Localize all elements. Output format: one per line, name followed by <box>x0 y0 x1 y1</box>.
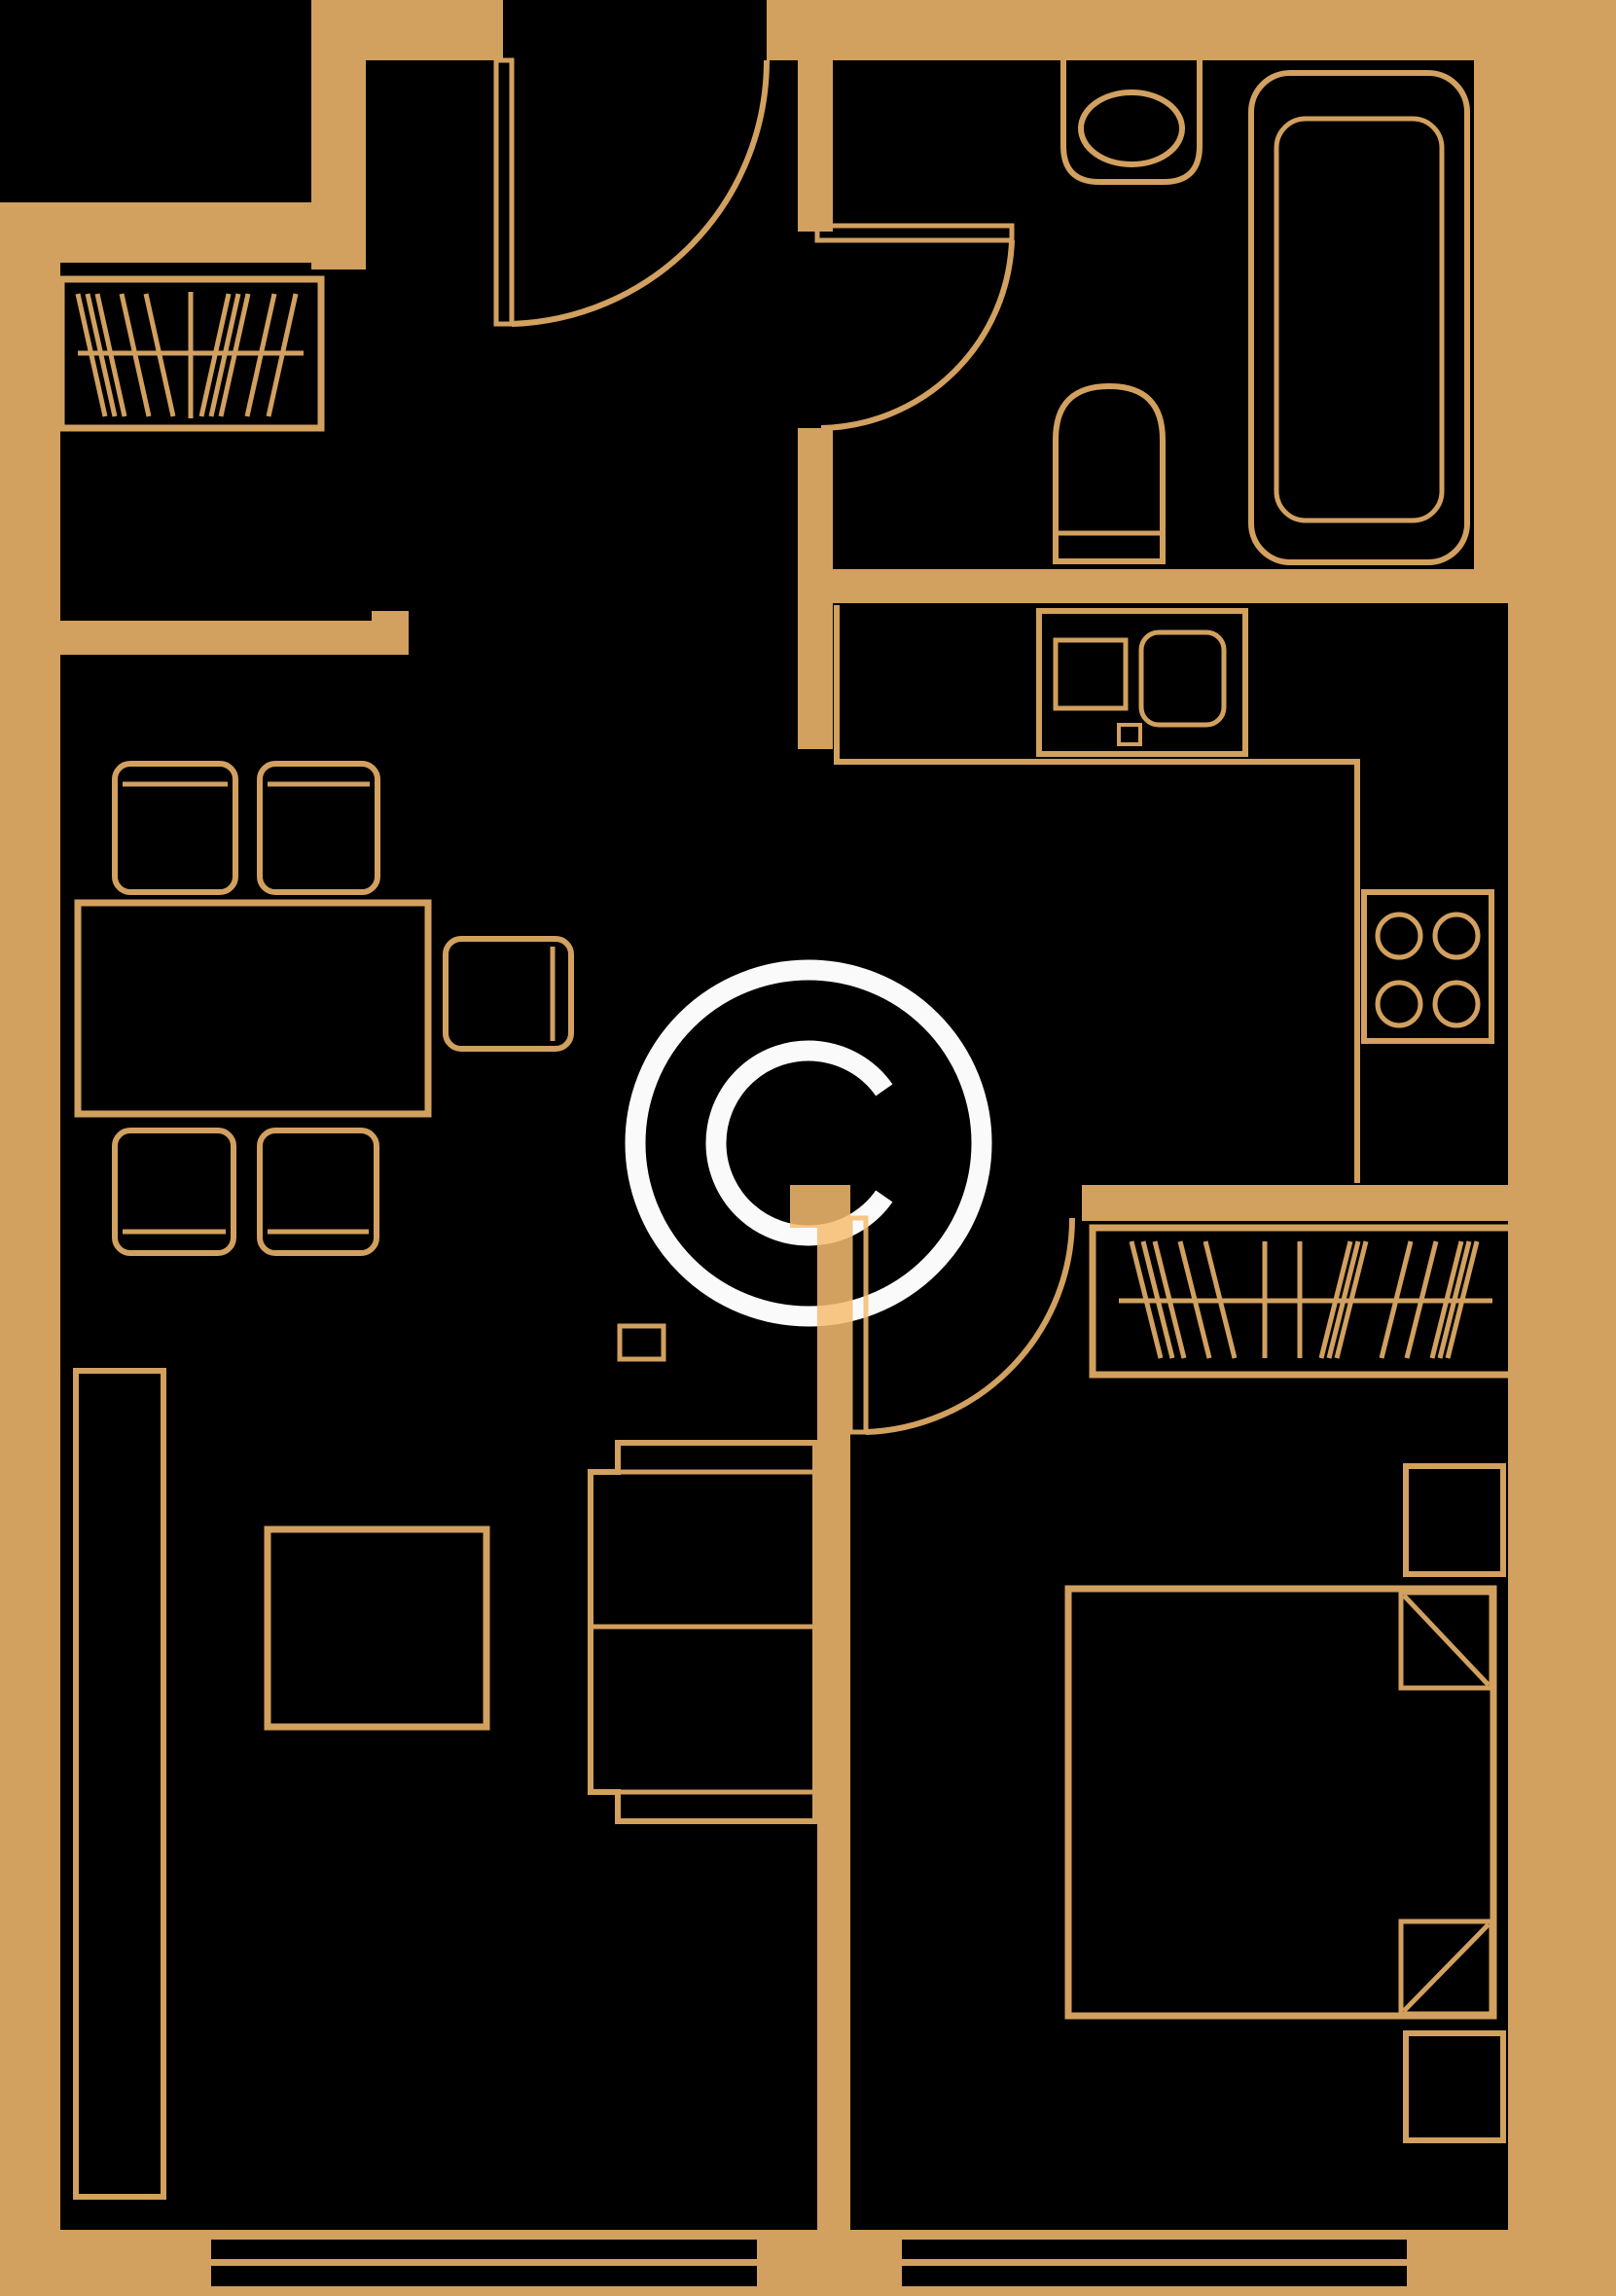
floor-plan <box>0 0 1616 2296</box>
wall-left <box>0 202 60 2296</box>
window-bedroom-inner <box>902 2266 1407 2286</box>
wall-hall-living <box>60 621 409 655</box>
floor-plan-svg <box>0 0 1616 2296</box>
wall-bedroom-top <box>1082 1185 1616 1221</box>
wall-hall-living-cap <box>372 611 409 655</box>
wall-right-bathroom <box>1474 0 1616 603</box>
window-living-outer <box>211 2240 757 2259</box>
wall-divider-stub <box>790 1185 850 1228</box>
window-living-inner <box>211 2266 757 2286</box>
wall-bathroom-pier <box>798 60 833 232</box>
window-bedroom-outer <box>902 2240 1407 2259</box>
wall-under-bathroom <box>798 569 1508 603</box>
background <box>0 0 1616 2296</box>
wall-room-divider <box>817 1185 850 2296</box>
wall-right-main <box>1508 603 1616 2296</box>
